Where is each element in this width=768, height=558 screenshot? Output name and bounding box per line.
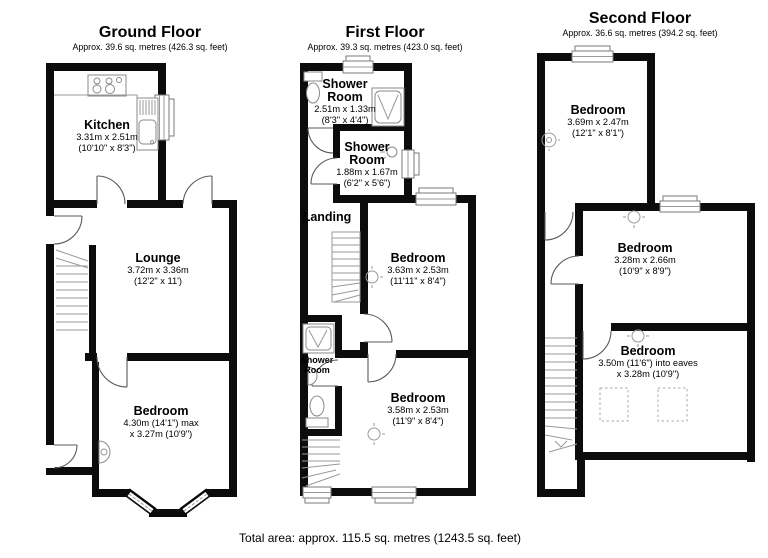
- room-label-bedroom-first-2: Bedroom 3.58m x 2.53m (11'9" x 8'4"): [363, 392, 473, 427]
- room-label-bedroom-second-top: Bedroom 3.69m x 2.47m (12'1" x 8'1"): [543, 104, 653, 139]
- room-label-bedroom-second-mid: Bedroom 3.28m x 2.66m (10'9" x 8'9"): [590, 242, 700, 277]
- room-dims-imperial: x 3.28m (10'9"): [583, 369, 713, 380]
- room-name: Shower Room: [312, 78, 378, 104]
- room-dims-imperial: (6'2" x 5'6"): [334, 178, 400, 189]
- room-label-shower-room-1: Shower Room 2.51m x 1.33m (8'3" x 4'4"): [312, 78, 378, 126]
- room-label-bedroom-first-1: Bedroom 3.63m x 2.53m (11'11" x 8'4"): [363, 252, 473, 287]
- room-dims-imperial: (11'9" x 8'4"): [363, 416, 473, 427]
- toilet-icon: [306, 396, 328, 427]
- room-name: Shower Room: [294, 356, 340, 375]
- basin-icon: [99, 441, 110, 463]
- room-dims-imperial: (8'3" x 4'4"): [312, 115, 378, 126]
- room-name: Bedroom: [363, 392, 473, 405]
- room-dims-metric: 2.51m x 1.33m: [312, 104, 378, 115]
- bay-window: [92, 489, 237, 517]
- room-label-bedroom-second-bottom: Bedroom 3.50m (11'6") into eaves x 3.28m…: [583, 345, 713, 380]
- room-dims-metric: 3.31m x 2.51m: [76, 132, 138, 143]
- room-dims-metric: 3.63m x 2.53m: [363, 265, 473, 276]
- room-label-landing: Landing: [303, 211, 352, 224]
- room-label-kitchen: Kitchen 3.31m x 2.51m (10'10" x 8'3"): [76, 119, 138, 154]
- room-name: Bedroom: [583, 345, 713, 358]
- room-dims-metric: 3.69m x 2.47m: [543, 117, 653, 128]
- room-name: Kitchen: [76, 119, 138, 132]
- room-name: Bedroom: [101, 405, 221, 418]
- room-dims-imperial: (10'10" x 8'3"): [76, 143, 138, 154]
- room-name: Shower Room: [334, 141, 400, 167]
- room-dims-metric: 4.30m (14'1") max: [101, 418, 221, 429]
- sink-icon: [137, 98, 158, 150]
- room-name: Bedroom: [363, 252, 473, 265]
- room-dims-metric: 3.72m x 3.36m: [127, 265, 189, 276]
- room-dims-metric: 3.58m x 2.53m: [363, 405, 473, 416]
- room-label-lounge: Lounge 3.72m x 3.36m (12'2" x 11'): [127, 252, 189, 287]
- room-dims-imperial: (10'9" x 8'9"): [590, 266, 700, 277]
- shower-tray-icon: [303, 324, 334, 353]
- room-name: Landing: [303, 211, 352, 224]
- ground-floor-plan: [45, 63, 237, 517]
- room-name: Bedroom: [590, 242, 700, 255]
- room-dims-imperial: x 3.27m (10'9"): [101, 429, 221, 440]
- first-floor-subtitle: Approx. 39.3 sq. metres (423.0 sq. feet): [307, 42, 462, 52]
- ground-floor-title: Ground Floor: [99, 24, 201, 42]
- room-dims-imperial: (11'11" x 8'4"): [363, 276, 473, 287]
- room-dims-imperial: (12'1" x 8'1"): [543, 128, 653, 139]
- room-label-shower-room-3: Shower Room: [294, 356, 340, 375]
- second-floor-subtitle: Approx. 36.6 sq. metres (394.2 sq. feet): [562, 28, 717, 38]
- room-dims-metric: 3.50m (11'6") into eaves: [583, 358, 713, 369]
- room-name: Bedroom: [543, 104, 653, 117]
- eaves-storage-outline: [600, 388, 628, 421]
- floorplan-page: Ground Floor Approx. 39.6 sq. metres (42…: [0, 0, 768, 558]
- room-name: Lounge: [127, 252, 189, 265]
- stairs-icon: [56, 250, 88, 330]
- room-label-bedroom-ground: Bedroom 4.30m (14'1") max x 3.27m (10'9"…: [101, 405, 221, 440]
- total-area-text: Total area: approx. 115.5 sq. metres (12…: [239, 531, 521, 545]
- stove-icon: [88, 75, 126, 96]
- second-floor-title: Second Floor: [589, 10, 691, 28]
- room-dims-metric: 1.88m x 1.67m: [334, 167, 400, 178]
- first-floor-title: First Floor: [345, 24, 424, 42]
- room-dims-imperial: (12'2" x 11'): [127, 276, 189, 287]
- room-dims-metric: 3.28m x 2.66m: [590, 255, 700, 266]
- stairs-icon: [545, 338, 577, 452]
- ground-floor-subtitle: Approx. 39.6 sq. metres (426.3 sq. feet): [72, 42, 227, 52]
- eaves-storage-outline: [658, 388, 687, 421]
- stairs-icon: [332, 232, 360, 302]
- room-label-shower-room-2: Shower Room 1.88m x 1.67m (6'2" x 5'6"): [334, 141, 400, 189]
